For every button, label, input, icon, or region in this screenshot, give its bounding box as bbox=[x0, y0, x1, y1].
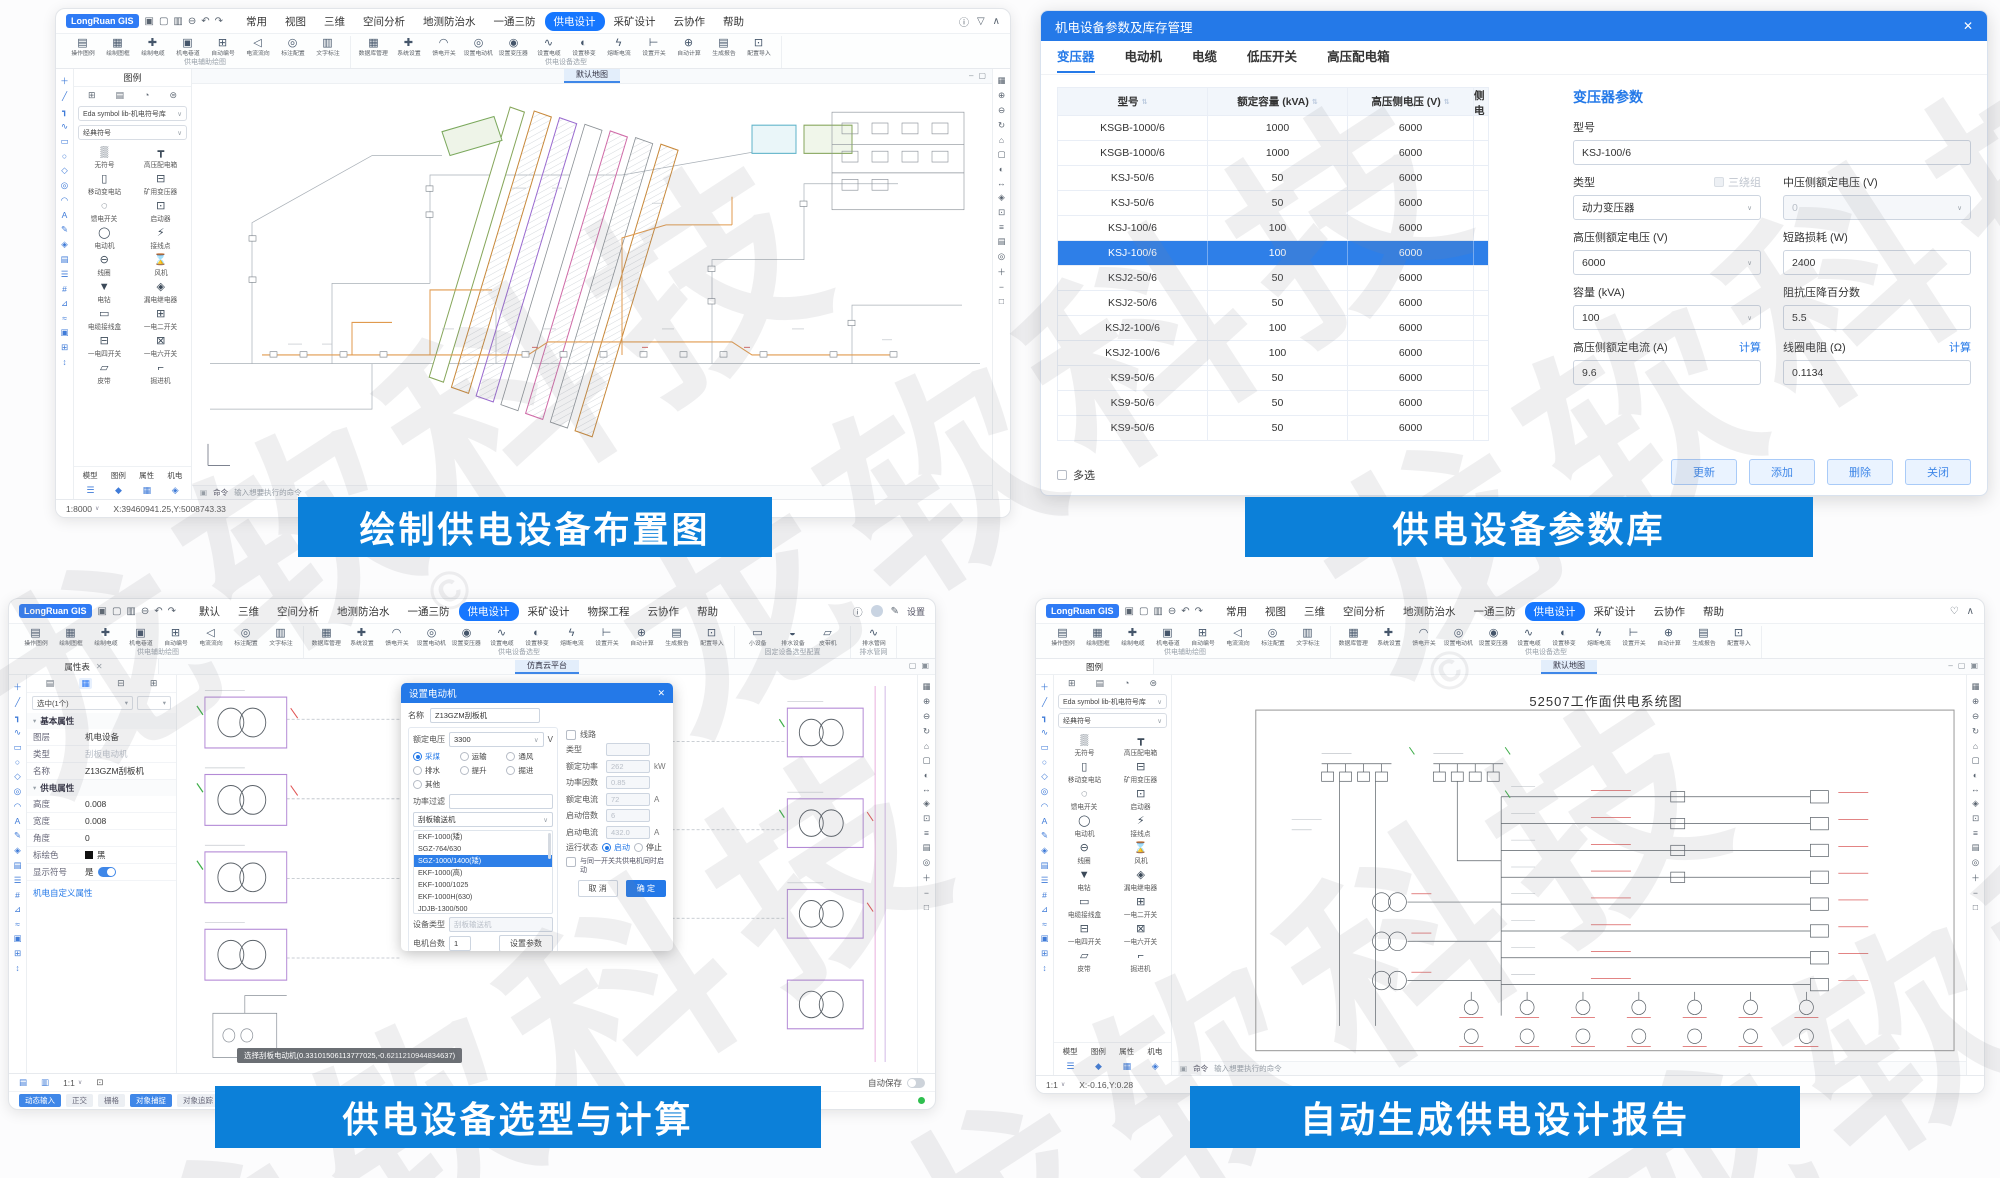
expand-panel-icon[interactable]: ▢ bbox=[978, 71, 986, 80]
scale-select[interactable]: 1:1∨ bbox=[63, 1078, 82, 1088]
view-tool-icon[interactable]: ◎ bbox=[923, 857, 930, 868]
ribbon-button[interactable]: ◎ 标注配置 bbox=[228, 626, 263, 648]
ribbon-button[interactable]: ✚ 绘制电缆 bbox=[88, 626, 123, 648]
capacity-select[interactable]: 100∨ bbox=[1573, 305, 1761, 330]
table-row[interactable]: KS9-50/6 50 6000 bbox=[1058, 366, 1488, 391]
show-symbol-toggle[interactable] bbox=[98, 867, 116, 877]
property-row[interactable]: 角度0 bbox=[27, 830, 176, 847]
draw-tool-icon[interactable]: ＋ bbox=[60, 75, 69, 87]
symbol-item[interactable]: ▱ 皮带 bbox=[1056, 950, 1113, 974]
view-tool-icon[interactable]: ≡ bbox=[1973, 828, 1978, 838]
symbol-category-select[interactable]: 经典符号∨ bbox=[78, 125, 187, 140]
dialog-footer-button[interactable]: 添加 bbox=[1749, 459, 1815, 485]
model-list-item[interactable]: SGZ-764/630 bbox=[414, 843, 552, 855]
draw-tool-icon[interactable]: ○ bbox=[1042, 757, 1047, 767]
quick-access-icon[interactable]: ▥ bbox=[126, 606, 135, 617]
model-list-item[interactable]: EKF-1000(高) bbox=[414, 867, 552, 879]
recent-icon[interactable]: ◔ bbox=[144, 90, 149, 101]
symbol-item[interactable]: ▯ 移动变电站 bbox=[1056, 761, 1113, 785]
symbol-item[interactable]: ◈ 漏电继电器 bbox=[1113, 869, 1170, 893]
ribbon-button[interactable]: ⊢ 设置开关 bbox=[589, 626, 624, 648]
grid-view-icon[interactable]: ⊞ bbox=[88, 90, 96, 101]
view-tool-icon[interactable]: ↻ bbox=[1972, 726, 1979, 737]
property-row[interactable]: 类型刮板电动机 bbox=[27, 746, 176, 763]
ribbon-button[interactable]: ⊕ 自动计算 bbox=[671, 36, 706, 58]
view-tool-icon[interactable]: ▤ bbox=[922, 842, 930, 853]
view-tool-icon[interactable]: ⊖ bbox=[1972, 711, 1979, 722]
quick-access-icon[interactable]: ↷ bbox=[168, 606, 176, 617]
ribbon-button[interactable]: ⊞ 自动编号 bbox=[158, 626, 193, 648]
ribbon-button[interactable]: ◎ 设置电动机 bbox=[414, 626, 449, 648]
ribbon-button[interactable]: ϟ 熔断电流 bbox=[554, 626, 589, 648]
draw-tool-icon[interactable]: ＋ bbox=[1040, 681, 1049, 693]
view-tool-icon[interactable]: ⌂ bbox=[1973, 741, 1978, 751]
category-radio[interactable]: 提升 bbox=[460, 765, 507, 776]
view-tool-icon[interactable]: ↔ bbox=[922, 784, 931, 794]
view-tool-icon[interactable]: ▢ bbox=[1971, 755, 1979, 766]
menu-item[interactable]: 常用 bbox=[1217, 602, 1256, 621]
draw-tool-icon[interactable]: ◈ bbox=[14, 845, 21, 856]
section-caret-icon[interactable]: ▾ bbox=[33, 784, 36, 792]
category-radio[interactable]: 排水 bbox=[413, 765, 460, 776]
menu-item[interactable]: 物探工程 bbox=[579, 602, 639, 621]
quick-access-icon[interactable]: ▣ bbox=[98, 606, 107, 617]
cad-toggle-pill[interactable]: 对象追踪 bbox=[177, 1094, 219, 1107]
view-tool-icon[interactable]: □ bbox=[999, 296, 1004, 306]
property-row[interactable]: 宽度0.008 bbox=[27, 813, 176, 830]
view-tool-icon[interactable]: − bbox=[924, 888, 929, 898]
view-tool-icon[interactable]: − bbox=[1973, 888, 1978, 898]
ribbon-button[interactable]: ✚ 绘制电缆 bbox=[1115, 626, 1150, 648]
model-list-item[interactable]: EKF-1000(矮) bbox=[414, 831, 552, 843]
ribbon-button[interactable]: ◐ 设置移变 bbox=[566, 36, 601, 58]
view-tool-icon[interactable]: ⊖ bbox=[923, 711, 930, 722]
draw-tool-icon[interactable]: ◇ bbox=[61, 165, 68, 176]
menu-item[interactable]: 一通三防 bbox=[1465, 602, 1525, 621]
table-row[interactable]: KSJ2-100/6 100 6000 bbox=[1058, 341, 1488, 366]
layers-icon[interactable]: ☰ bbox=[86, 485, 94, 496]
symbol-item[interactable]: ▼ 电钻 bbox=[1056, 869, 1113, 893]
layers-icon[interactable]: ☰ bbox=[1066, 1061, 1074, 1072]
draw-tool-icon[interactable]: ▤ bbox=[60, 254, 68, 265]
legend-footer-tab[interactable]: 属性 bbox=[1119, 1046, 1134, 1057]
ribbon-button[interactable]: ⊕ 自动计算 bbox=[624, 626, 659, 648]
view-tool-icon[interactable]: ＋ bbox=[922, 872, 931, 884]
symbol-item[interactable]: ◈ 漏电继电器 bbox=[133, 281, 190, 305]
draw-tool-icon[interactable]: ∿ bbox=[1041, 727, 1048, 738]
list-view-icon[interactable]: ▤ bbox=[1096, 678, 1105, 689]
view-tool-icon[interactable]: ＋ bbox=[1971, 872, 1980, 884]
expand-panel-icon[interactable]: ▢ bbox=[1958, 661, 1966, 670]
view-tool-icon[interactable]: ⊖ bbox=[998, 105, 1005, 116]
symbol-item[interactable]: ⊡ 启动器 bbox=[133, 200, 190, 224]
titlebar-icon[interactable]: ♡ bbox=[1950, 606, 1959, 617]
quick-access-icon[interactable]: ▢ bbox=[159, 16, 168, 27]
ribbon-button[interactable]: ✚ 系统设置 bbox=[391, 36, 426, 58]
column-header[interactable]: 额定容量 (kVA)⇅ bbox=[1208, 88, 1348, 115]
ribbon-button[interactable]: ▥ 文字标注 bbox=[263, 626, 298, 648]
draw-tool-icon[interactable]: ┓ bbox=[15, 712, 20, 723]
symbol-item[interactable]: ⊞ 一电二开关 bbox=[1113, 896, 1170, 920]
draw-tool-icon[interactable]: ◠ bbox=[61, 195, 68, 206]
doc-icon[interactable]: ▤ bbox=[19, 1077, 27, 1088]
model-list-item[interactable]: JDJB-1300/500 bbox=[414, 903, 552, 914]
equipment-tab[interactable]: 高压配电箱 bbox=[1327, 42, 1390, 73]
menu-item[interactable]: 一通三防 bbox=[399, 602, 459, 621]
symbol-item[interactable]: ▯ 移动变电站 bbox=[76, 173, 133, 197]
symbol-item[interactable]: ⊖ 线圈 bbox=[1056, 842, 1113, 866]
ribbon-button[interactable]: ⊡ 配置导入 bbox=[694, 626, 729, 648]
ribbon-button[interactable]: ▤ 操作图例 bbox=[1045, 626, 1080, 648]
menu-item[interactable]: 空间分析 bbox=[268, 602, 328, 621]
ribbon-button[interactable]: ⊕ 自动计算 bbox=[1651, 626, 1686, 648]
cad-toggle-pill[interactable]: 正交 bbox=[66, 1094, 93, 1107]
document-tab[interactable]: 默认地图 bbox=[564, 69, 620, 83]
view-tool-icon[interactable]: ⊡ bbox=[1972, 813, 1979, 824]
layout-panel-icon[interactable]: ▣ bbox=[1970, 661, 1978, 670]
view-tool-icon[interactable]: ▢ bbox=[997, 149, 1005, 160]
menu-item[interactable]: 空间分析 bbox=[354, 12, 414, 31]
ribbon-button[interactable]: ◎ 设置电动机 bbox=[461, 36, 496, 58]
property-row-color[interactable]: 标绘色 黑 bbox=[27, 847, 176, 864]
draw-tool-icon[interactable]: ◇ bbox=[1041, 771, 1048, 782]
symbol-item[interactable]: ⊡ 启动器 bbox=[1113, 788, 1170, 812]
settings-icon[interactable]: ⊜ bbox=[169, 90, 177, 101]
doc-copy-icon[interactable]: ▥ bbox=[41, 1077, 49, 1088]
ribbon-button[interactable]: ◠ 馈电开关 bbox=[379, 626, 414, 648]
quick-access-icon[interactable]: ↷ bbox=[215, 16, 223, 27]
ribbon-button[interactable]: ▦ 绘制图框 bbox=[53, 626, 88, 648]
ribbon-button[interactable]: ◐ 设置移变 bbox=[1546, 626, 1581, 648]
favorite-icon[interactable]: ◈ bbox=[1152, 1061, 1159, 1072]
symbol-item[interactable]: ⌛ 风机 bbox=[1113, 842, 1170, 866]
category-radio[interactable]: 运输 bbox=[460, 751, 507, 762]
menu-item[interactable]: 采矿设计 bbox=[605, 12, 665, 31]
state-run-radio[interactable]: 启动 bbox=[602, 842, 630, 853]
quick-access-icon[interactable]: ▢ bbox=[112, 606, 121, 617]
titlebar-icon[interactable]: ∧ bbox=[993, 16, 1000, 27]
ribbon-button[interactable]: ▦ 数据库管理 bbox=[356, 36, 391, 58]
draw-tool-icon[interactable]: ↕ bbox=[1042, 963, 1046, 973]
menu-item[interactable]: 地测防治水 bbox=[328, 602, 399, 621]
symbol-item[interactable]: ⊟ 一电四开关 bbox=[1056, 923, 1113, 947]
draw-tool-icon[interactable]: ✎ bbox=[14, 830, 21, 841]
draw-tool-icon[interactable]: # bbox=[62, 284, 67, 294]
draw-tool-icon[interactable]: ◠ bbox=[1041, 801, 1048, 812]
symbol-item[interactable]: ▭ 电缆接线盒 bbox=[76, 308, 133, 332]
draw-tool-icon[interactable]: ☰ bbox=[14, 875, 22, 886]
draw-tool-icon[interactable]: ◈ bbox=[1041, 845, 1048, 856]
library-icon[interactable]: ▦ bbox=[1123, 1061, 1132, 1072]
scale-select[interactable]: 1:1∨ bbox=[1046, 1080, 1065, 1090]
ribbon-button[interactable]: ◠ 馈电开关 bbox=[426, 36, 461, 58]
symbol-item[interactable]: ⊟ 矿用变压器 bbox=[133, 173, 190, 197]
view-tool-icon[interactable]: ⊕ bbox=[998, 90, 1005, 101]
titlebar-icon[interactable]: ∧ bbox=[1967, 606, 1974, 617]
menu-item[interactable]: 云协作 bbox=[665, 12, 715, 31]
symbol-library-select[interactable]: Eda symbol lib-机电符号库∨ bbox=[1058, 694, 1167, 709]
name-input[interactable] bbox=[430, 708, 540, 723]
legend-footer-tab[interactable]: 属性 bbox=[139, 470, 154, 481]
view-tool-icon[interactable]: ⌂ bbox=[999, 135, 1004, 145]
draw-tool-icon[interactable]: ◎ bbox=[14, 786, 21, 797]
ribbon-button[interactable]: ⊞ 自动编号 bbox=[1185, 626, 1220, 648]
layout-panel-icon[interactable]: ▣ bbox=[921, 661, 929, 670]
view-tool-icon[interactable]: ◐ bbox=[1973, 770, 1978, 780]
column-header[interactable]: 型号⇅ bbox=[1058, 88, 1208, 115]
view-tool-icon[interactable]: ⊕ bbox=[923, 696, 930, 707]
ribbon-button[interactable]: ◎ 设置电动机 bbox=[1441, 626, 1476, 648]
symbol-item[interactable]: ▱ 皮带 bbox=[76, 362, 133, 386]
view-tool-icon[interactable]: ↔ bbox=[997, 178, 1006, 188]
table-row[interactable]: KS9-50/6 50 6000 bbox=[1058, 416, 1488, 441]
quick-access-icon[interactable]: ↶ bbox=[1181, 606, 1189, 617]
ribbon-button[interactable]: ▤ 操作图例 bbox=[65, 36, 100, 58]
symbol-item[interactable]: ▒ 无符号 bbox=[1056, 734, 1113, 758]
category-radio[interactable]: 采煤 bbox=[413, 751, 460, 762]
ribbon-button[interactable]: ∿ 排水管网 bbox=[856, 626, 891, 648]
props-collapse-icon[interactable]: ⊟ bbox=[117, 678, 125, 689]
ribbon-button[interactable]: ▦ 绘制图框 bbox=[1080, 626, 1115, 648]
draw-tool-icon[interactable]: ≈ bbox=[62, 313, 67, 323]
view-tool-icon[interactable]: ↻ bbox=[923, 726, 930, 737]
fit-view-icon[interactable]: ⊡ bbox=[96, 1077, 103, 1088]
draw-tool-icon[interactable]: ▤ bbox=[13, 860, 21, 871]
ribbon-button[interactable]: ∿ 设置电缆 bbox=[484, 626, 519, 648]
shapes-icon[interactable]: ◆ bbox=[1095, 1061, 1102, 1072]
state-stop-radio[interactable]: 停止 bbox=[634, 842, 662, 853]
symbol-item[interactable]: ◌ 馈电开关 bbox=[1056, 788, 1113, 812]
ribbon-button[interactable]: ⊡ 配置导入 bbox=[741, 36, 776, 58]
menu-item[interactable]: 云协作 bbox=[1645, 602, 1695, 621]
ribbon-button[interactable]: ◁ 电流流向 bbox=[240, 36, 275, 58]
ribbon-button[interactable]: ▣ 机电巷道 bbox=[170, 36, 205, 58]
view-tool-icon[interactable]: □ bbox=[924, 902, 929, 912]
menu-item[interactable]: 常用 bbox=[237, 12, 276, 31]
close-icon[interactable]: ✕ bbox=[657, 688, 665, 699]
ribbon-button[interactable]: ⊡ 配置导入 bbox=[1721, 626, 1756, 648]
custom-attributes-link[interactable]: 机电自定义属性 bbox=[27, 881, 176, 905]
ribbon-button[interactable]: ▥ 文字标注 bbox=[310, 36, 345, 58]
view-tool-icon[interactable]: ▤ bbox=[1971, 842, 1979, 853]
draw-tool-icon[interactable]: ◈ bbox=[61, 239, 68, 250]
ribbon-button[interactable]: ◁ 电流流向 bbox=[193, 626, 228, 648]
view-tool-icon[interactable]: ⊡ bbox=[923, 813, 930, 824]
ribbon-button[interactable]: ✚ 系统设置 bbox=[1371, 626, 1406, 648]
map-canvas[interactable] bbox=[192, 84, 992, 485]
ribbon-button[interactable]: ▤ 生成报告 bbox=[659, 626, 694, 648]
symbol-library-select[interactable]: Eda symbol lib-机电符号库∨ bbox=[78, 106, 187, 121]
legend-tab[interactable]: 图例 bbox=[1036, 659, 1154, 674]
draw-tool-icon[interactable]: ▣ bbox=[1040, 933, 1048, 944]
quick-access-icon[interactable]: ▣ bbox=[145, 16, 154, 27]
draw-tool-icon[interactable]: ✎ bbox=[1041, 830, 1048, 841]
ribbon-button[interactable]: ϟ 熔断电流 bbox=[1581, 626, 1616, 648]
quick-access-icon[interactable]: ⊖ bbox=[188, 16, 196, 27]
draw-tool-icon[interactable]: ╱ bbox=[15, 697, 20, 708]
view-tool-icon[interactable]: ↔ bbox=[1971, 784, 1980, 794]
symbol-item[interactable]: ⊟ 一电四开关 bbox=[76, 335, 133, 359]
table-row[interactable]: KSJ2-100/6 100 6000 bbox=[1058, 316, 1488, 341]
menu-item[interactable]: 地测防治水 bbox=[1394, 602, 1465, 621]
view-tool-icon[interactable]: ◐ bbox=[924, 770, 929, 780]
set-params-button[interactable]: 设置参数 bbox=[499, 935, 553, 951]
ribbon-button[interactable]: ◐ 设置移变 bbox=[519, 626, 554, 648]
category-radio[interactable]: 掘进 bbox=[506, 765, 553, 776]
device-category-select[interactable]: 刮板输送机∨ bbox=[413, 812, 553, 827]
table-row[interactable]: KSJ-50/6 50 6000 bbox=[1058, 191, 1488, 216]
draw-tool-icon[interactable]: ⊿ bbox=[14, 904, 21, 915]
menu-item[interactable]: 帮助 bbox=[1694, 602, 1733, 621]
grid-view-icon[interactable]: ⊞ bbox=[1068, 678, 1076, 689]
dialog-footer-button[interactable]: 更新 bbox=[1671, 459, 1737, 485]
draw-tool-icon[interactable]: ┓ bbox=[62, 106, 67, 117]
menu-item[interactable]: 供电设计 bbox=[545, 12, 605, 31]
type-select[interactable]: 动力变压器∨ bbox=[1573, 195, 1761, 220]
view-tool-icon[interactable]: ◈ bbox=[1972, 798, 1979, 809]
column-header[interactable]: 高压侧电压 (V)⇅ bbox=[1348, 88, 1474, 115]
symbol-item[interactable]: ┳ 高压配电箱 bbox=[133, 146, 190, 170]
view-tool-icon[interactable]: ▦ bbox=[922, 681, 930, 692]
ribbon-button[interactable]: ⊞ 自动编号 bbox=[205, 36, 240, 58]
equipment-tab[interactable]: 低压开关 bbox=[1247, 42, 1297, 73]
minimize-panel-icon[interactable]: ‒ bbox=[969, 71, 973, 80]
view-tool-icon[interactable]: ▦ bbox=[1971, 681, 1979, 692]
quick-access-icon[interactable]: ↶ bbox=[154, 606, 162, 617]
draw-tool-icon[interactable]: ⊞ bbox=[1041, 948, 1048, 959]
ribbon-button[interactable]: ◎ 标注配置 bbox=[1255, 626, 1290, 648]
draw-tool-icon[interactable]: ☰ bbox=[1041, 875, 1049, 886]
symbol-item[interactable]: ◯ 电动机 bbox=[1056, 815, 1113, 839]
filter-select[interactable]: ▾ bbox=[137, 696, 171, 710]
property-row[interactable]: 图层机电设备 bbox=[27, 729, 176, 746]
draw-tool-icon[interactable]: ○ bbox=[62, 151, 67, 161]
ribbon-button[interactable]: ⊢ 设置开关 bbox=[1616, 626, 1651, 648]
draw-tool-icon[interactable]: ⊿ bbox=[1041, 904, 1048, 915]
ribbon-button[interactable]: ∿ 设置电缆 bbox=[531, 36, 566, 58]
menu-item[interactable]: 视图 bbox=[276, 12, 315, 31]
draw-tool-icon[interactable]: ∿ bbox=[61, 121, 68, 132]
draw-tool-icon[interactable]: ┓ bbox=[1042, 712, 1047, 723]
settings-icon[interactable]: ⊜ bbox=[1149, 678, 1157, 689]
info-icon[interactable]: ⓘ bbox=[853, 604, 863, 619]
symbol-item[interactable]: ⌛ 风机 bbox=[133, 254, 190, 278]
draw-tool-icon[interactable]: ⊞ bbox=[61, 342, 68, 353]
titlebar-icon[interactable]: ▽ bbox=[977, 16, 985, 27]
column-header[interactable]: 低压侧电压 (V) bbox=[1474, 88, 1488, 115]
menu-item[interactable]: 默认 bbox=[190, 602, 229, 621]
menu-item[interactable]: 三维 bbox=[1295, 602, 1334, 621]
calc-current-link[interactable]: 计算 bbox=[1739, 339, 1761, 355]
model-input[interactable] bbox=[1573, 140, 1971, 165]
menu-item[interactable]: 帮助 bbox=[714, 12, 753, 31]
autosave-toggle[interactable] bbox=[907, 1078, 925, 1088]
sync-start-checkbox[interactable] bbox=[566, 857, 576, 867]
recent-icon[interactable]: ◔ bbox=[1124, 678, 1129, 689]
draw-tool-icon[interactable]: # bbox=[15, 890, 20, 900]
expand-panel-icon[interactable]: ▢ bbox=[909, 661, 917, 670]
symbol-category-select[interactable]: 经典符号∨ bbox=[1058, 713, 1167, 728]
power-filter-input[interactable] bbox=[449, 794, 553, 809]
menu-item[interactable]: 供电设计 bbox=[459, 602, 519, 621]
menu-item[interactable]: 云协作 bbox=[639, 602, 689, 621]
view-tool-icon[interactable]: □ bbox=[1973, 902, 1978, 912]
voltage-select[interactable]: 3300∨ bbox=[449, 732, 544, 747]
draw-tool-icon[interactable]: A bbox=[15, 816, 21, 826]
ribbon-button[interactable]: ◉ 设置变压器 bbox=[1476, 626, 1511, 648]
props-add-icon[interactable]: ⊞ bbox=[150, 678, 158, 689]
avatar[interactable] bbox=[871, 605, 883, 617]
draw-tool-icon[interactable]: ∿ bbox=[14, 727, 21, 738]
symbol-item[interactable]: ⌐ 掘进机 bbox=[1113, 950, 1170, 974]
quick-access-icon[interactable]: ▢ bbox=[1139, 606, 1148, 617]
legend-footer-tab[interactable]: 机电 bbox=[167, 470, 182, 481]
symbol-item[interactable]: ⚡ 接线点 bbox=[133, 227, 190, 251]
ribbon-button[interactable]: ▦ 数据库管理 bbox=[1336, 626, 1371, 648]
draw-tool-icon[interactable]: ╱ bbox=[62, 91, 67, 102]
menu-item[interactable]: 供电设计 bbox=[1525, 602, 1585, 621]
table-row[interactable]: KSJ-100/6 100 6000 bbox=[1058, 216, 1488, 241]
document-tab[interactable]: 默认地图 bbox=[1541, 660, 1597, 674]
menu-item[interactable]: 一通三防 bbox=[485, 12, 545, 31]
ribbon-button[interactable]: ◉ 设置变压器 bbox=[449, 626, 484, 648]
cancel-button[interactable]: 取 消 bbox=[578, 880, 618, 897]
titlebar-icon[interactable]: ⓘ bbox=[959, 14, 969, 29]
draw-tool-icon[interactable]: ▣ bbox=[13, 933, 21, 944]
draw-tool-icon[interactable]: ↕ bbox=[15, 963, 19, 973]
close-icon[interactable]: ✕ bbox=[1963, 19, 1973, 33]
draw-tool-icon[interactable]: ✎ bbox=[61, 224, 68, 235]
view-tool-icon[interactable]: ＋ bbox=[997, 266, 1006, 278]
selection-count-select[interactable]: 选中(1个)▾ bbox=[32, 696, 133, 710]
ribbon-button[interactable]: ▥ 文字标注 bbox=[1290, 626, 1325, 648]
cad-toggle-pill[interactable]: 动态输入 bbox=[19, 1094, 61, 1107]
quick-access-icon[interactable]: ⊖ bbox=[141, 606, 149, 617]
menu-item[interactable]: 采矿设计 bbox=[1585, 602, 1645, 621]
draw-tool-icon[interactable]: ≈ bbox=[15, 919, 20, 929]
quick-access-icon[interactable]: ↶ bbox=[201, 16, 209, 27]
menu-item[interactable]: 三维 bbox=[315, 12, 354, 31]
symbol-item[interactable]: ⌐ 掘进机 bbox=[133, 362, 190, 386]
scrollbar[interactable] bbox=[548, 833, 551, 859]
symbol-item[interactable]: ⊟ 矿用变压器 bbox=[1113, 761, 1170, 785]
quick-access-icon[interactable]: ▥ bbox=[173, 16, 182, 27]
shapes-icon[interactable]: ◆ bbox=[115, 485, 122, 496]
equipment-tab[interactable]: 变压器 bbox=[1057, 42, 1095, 73]
list-view-icon[interactable]: ▤ bbox=[116, 90, 125, 101]
ribbon-button[interactable]: ◠ 馈电开关 bbox=[1406, 626, 1441, 648]
draw-tool-icon[interactable]: A bbox=[1042, 816, 1048, 826]
draw-tool-icon[interactable]: A bbox=[62, 210, 68, 220]
line-checkbox[interactable] bbox=[566, 730, 576, 740]
symbol-item[interactable]: ▒ 无符号 bbox=[76, 146, 133, 170]
property-row[interactable]: 名称Z13GZM刮板机 bbox=[27, 763, 176, 780]
ribbon-button[interactable]: ▤ 操作图例 bbox=[18, 626, 53, 648]
draw-tool-icon[interactable]: # bbox=[1042, 890, 1047, 900]
loss-input[interactable] bbox=[1783, 250, 1971, 275]
motor-count-input[interactable] bbox=[449, 936, 471, 951]
cad-toggle-pill[interactable]: 栅格 bbox=[98, 1094, 125, 1107]
ok-button[interactable]: 确 定 bbox=[626, 880, 666, 897]
table-row[interactable]: KSGB-1000/6 1000 6000 bbox=[1058, 141, 1488, 166]
model-list-item[interactable]: EKF-1000H(630) bbox=[414, 891, 552, 903]
color-swatch[interactable] bbox=[85, 851, 93, 859]
document-tab[interactable]: 仿真云平台 bbox=[515, 660, 579, 674]
dialog-footer-button[interactable]: 关闭 bbox=[1905, 459, 1971, 485]
ribbon-button[interactable]: ◒ 排水设备 bbox=[775, 626, 810, 648]
draw-tool-icon[interactable]: ◎ bbox=[61, 180, 68, 191]
draw-tool-icon[interactable]: ≈ bbox=[1042, 919, 1047, 929]
